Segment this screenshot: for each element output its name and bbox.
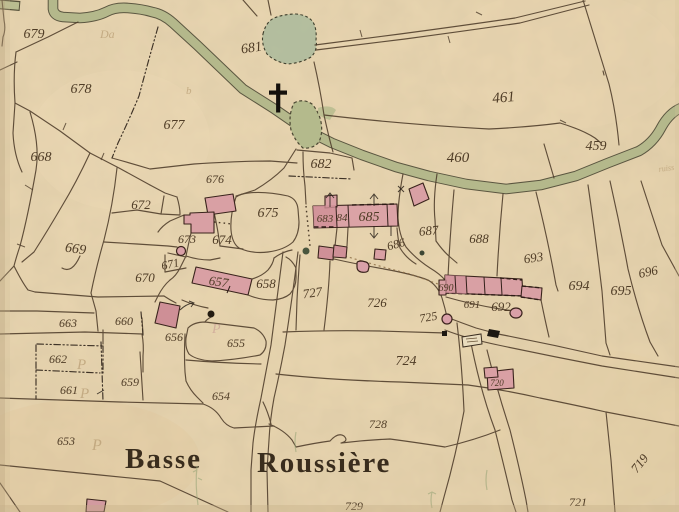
svg-text:Basse: Basse <box>125 443 202 475</box>
svg-text:677: 677 <box>164 118 186 133</box>
svg-text:658: 658 <box>256 276 276 291</box>
svg-text:682: 682 <box>311 157 332 172</box>
svg-text:b: b <box>186 85 192 97</box>
svg-text:670: 670 <box>135 270 155 285</box>
svg-text:726: 726 <box>367 295 387 310</box>
svg-text:692: 692 <box>491 299 511 314</box>
svg-text:653: 653 <box>57 434 75 448</box>
svg-text:662: 662 <box>49 352 67 366</box>
svg-text:678: 678 <box>71 82 92 97</box>
svg-text:657: 657 <box>208 273 230 291</box>
svg-text:690: 690 <box>439 283 454 294</box>
svg-text:688: 688 <box>469 231 489 246</box>
svg-text:668: 668 <box>31 150 52 165</box>
svg-text:Roussière: Roussière <box>257 447 391 479</box>
svg-text:660: 660 <box>115 314 133 328</box>
svg-text:461: 461 <box>492 89 516 107</box>
svg-text:675: 675 <box>258 206 279 221</box>
svg-text:P: P <box>91 437 102 454</box>
svg-text:728: 728 <box>369 417 387 431</box>
svg-text:683: 683 <box>317 213 334 225</box>
svg-text:Da: Da <box>99 27 115 41</box>
svg-text:694: 694 <box>569 279 590 294</box>
svg-text:669: 669 <box>64 241 87 259</box>
svg-text:691: 691 <box>464 299 481 311</box>
svg-text:P: P <box>79 386 89 402</box>
svg-text:84: 84 <box>337 212 349 224</box>
svg-text:659: 659 <box>121 375 139 389</box>
svg-text:673: 673 <box>178 232 196 246</box>
svg-text:P: P <box>76 357 86 373</box>
svg-text:655: 655 <box>227 336 245 350</box>
svg-text:663: 663 <box>59 316 77 330</box>
svg-text:685: 685 <box>359 210 380 225</box>
svg-text:720: 720 <box>490 378 504 388</box>
svg-text:724: 724 <box>396 354 417 369</box>
svg-text:P: P <box>211 322 221 337</box>
svg-text:727: 727 <box>302 284 324 302</box>
svg-text:654: 654 <box>212 389 230 403</box>
svg-text:460: 460 <box>447 150 470 166</box>
svg-text:674: 674 <box>212 232 232 247</box>
svg-text:681: 681 <box>240 40 263 58</box>
svg-text:656: 656 <box>165 330 183 344</box>
svg-text:679: 679 <box>24 27 45 42</box>
svg-text:676: 676 <box>206 172 224 186</box>
svg-text:693: 693 <box>523 249 545 267</box>
svg-text:687: 687 <box>418 222 439 239</box>
svg-text:695: 695 <box>611 284 632 299</box>
svg-text:661: 661 <box>60 383 78 397</box>
svg-text:672: 672 <box>131 197 151 212</box>
svg-text:459: 459 <box>586 139 607 154</box>
